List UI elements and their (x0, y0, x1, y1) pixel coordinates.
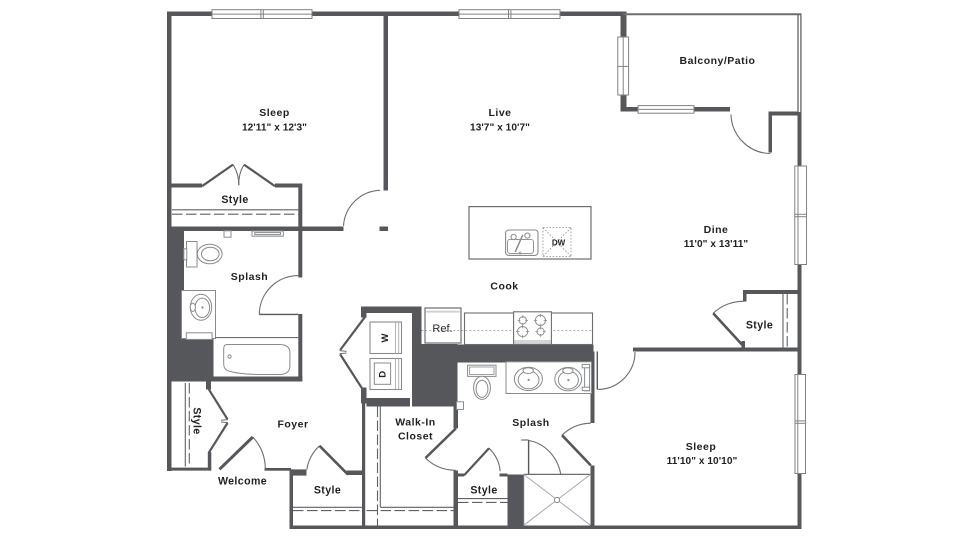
svg-text:Style: Style (221, 194, 248, 206)
svg-text:Style: Style (191, 407, 203, 434)
svg-text:Splash: Splash (231, 271, 268, 283)
svg-text:Live: Live (488, 107, 511, 119)
svg-text:13'7" x 10'7": 13'7" x 10'7" (470, 122, 530, 133)
svg-text:Closet: Closet (398, 430, 433, 442)
svg-text:D: D (378, 371, 389, 378)
svg-text:Style: Style (314, 484, 341, 496)
svg-text:Balcony/Patio: Balcony/Patio (680, 55, 756, 67)
svg-text:11'10" x 10'10": 11'10" x 10'10" (667, 456, 738, 467)
svg-text:Style: Style (746, 319, 773, 331)
svg-text:Ref.: Ref. (432, 323, 452, 335)
svg-text:12'11" x 12'3": 12'11" x 12'3" (242, 122, 307, 133)
svg-text:DW: DW (552, 239, 566, 248)
svg-text:W: W (380, 333, 391, 342)
svg-text:Splash: Splash (512, 417, 549, 429)
svg-text:Walk-In: Walk-In (395, 416, 435, 428)
svg-text:Sleep: Sleep (686, 441, 717, 453)
svg-text:Cook: Cook (490, 281, 518, 293)
svg-text:Welcome: Welcome (218, 475, 267, 487)
svg-text:Dine: Dine (704, 224, 729, 236)
svg-text:Style: Style (470, 484, 497, 496)
svg-text:Foyer: Foyer (277, 419, 308, 431)
svg-text:11'0" x 13'11": 11'0" x 13'11" (684, 239, 749, 250)
svg-text:Sleep: Sleep (259, 107, 290, 119)
